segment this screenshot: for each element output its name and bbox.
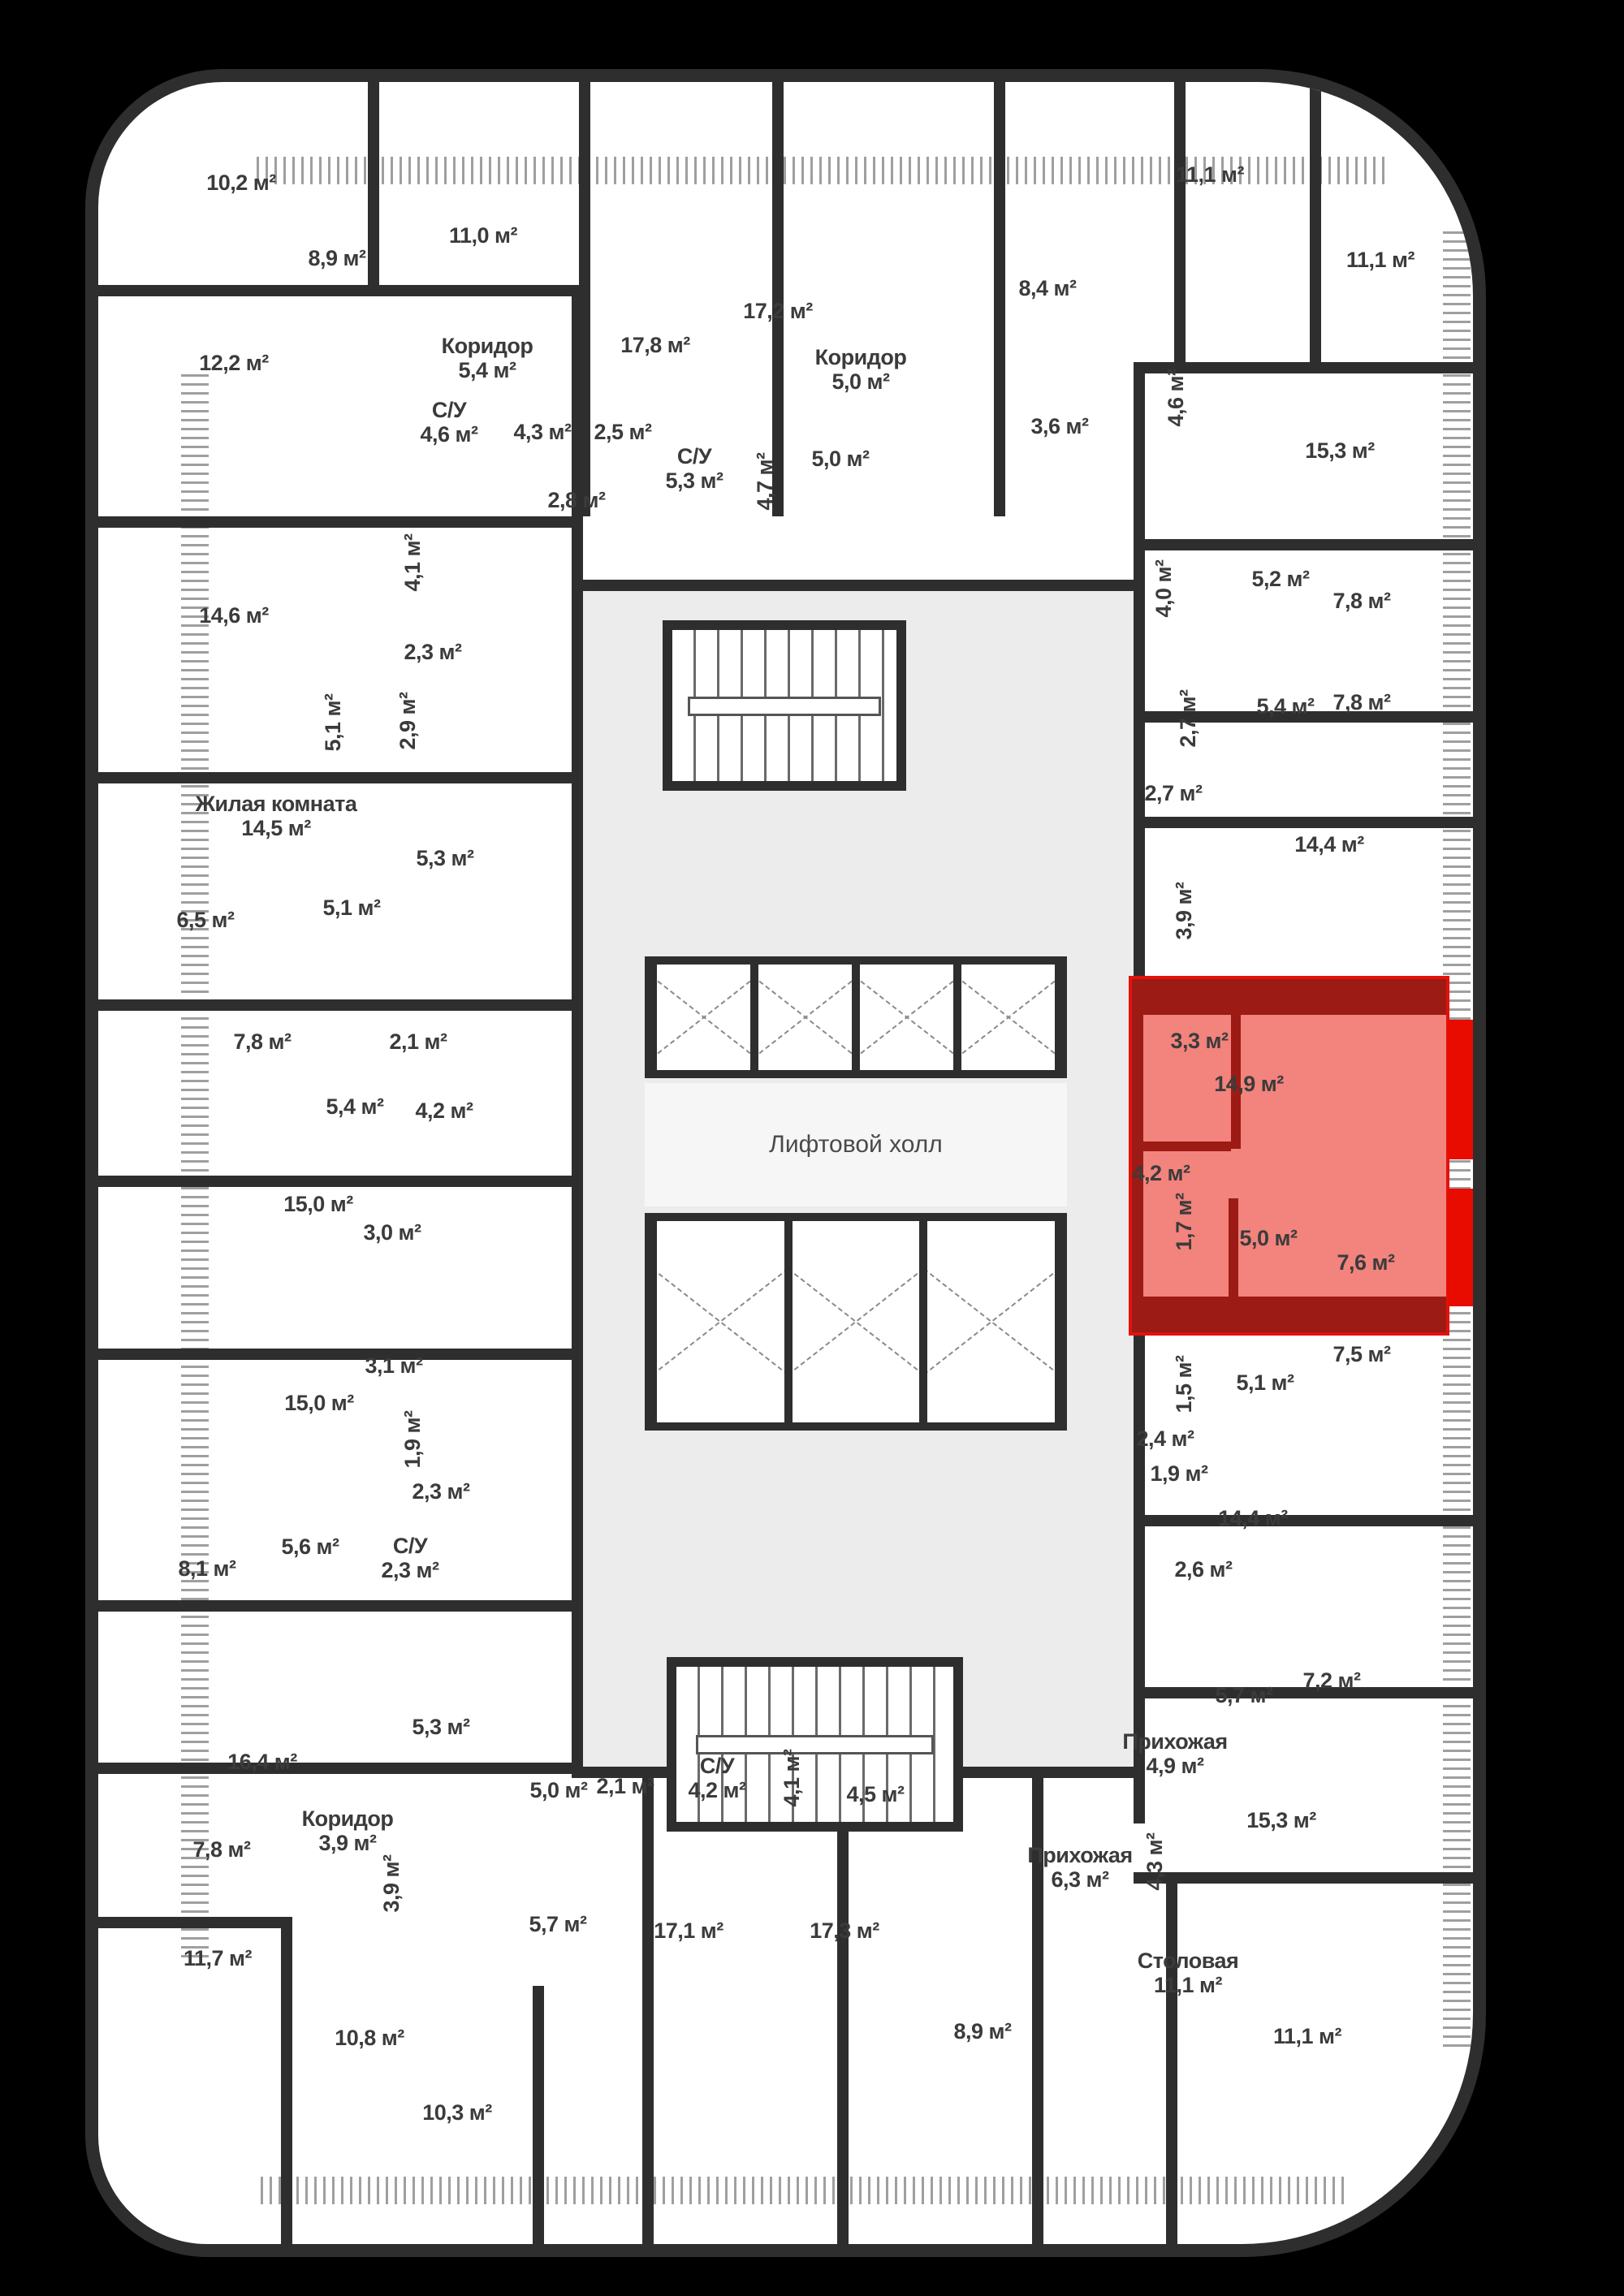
room-label: 4,1 м² (400, 534, 425, 592)
room-label: 3,0 м² (364, 1220, 421, 1245)
room-label: 14,6 м² (199, 603, 269, 628)
room-labels: 10,2 м²8,9 м²11,0 м²12,2 м²14,6 м²Жилая … (0, 0, 1624, 2296)
room-label: 3,6 м² (1031, 414, 1089, 438)
room-label: 11,1 м² (1273, 2024, 1341, 2048)
room-label: 2,7 м² (1145, 781, 1203, 805)
room-label: 14,4 м² (1218, 1506, 1288, 1530)
room-label: 2,4 м² (1137, 1426, 1194, 1451)
room-label: 5,4 м² (1257, 694, 1315, 719)
room-label: 12,2 м² (199, 351, 269, 375)
room-label: 7,8 м² (234, 1029, 292, 1054)
room-label: 5,7 м² (1216, 1683, 1273, 1707)
room-label: 11,0 м² (449, 223, 517, 248)
room-label: 15,3 м² (1246, 1808, 1316, 1832)
room-label: 15,0 м² (283, 1192, 353, 1216)
room-label: 4,3 м² (1142, 1833, 1167, 1891)
room-label: 5,6 м² (282, 1534, 339, 1559)
room-label: 5,7 м² (529, 1912, 587, 1936)
room-label: 17,3 м² (810, 1918, 879, 1943)
room-label: 2,3 м² (404, 640, 462, 664)
selected-apartment-room-label: 5,0 м² (1240, 1226, 1298, 1250)
room-label: 5,2 м² (1252, 567, 1310, 591)
room-label: 10,8 м² (335, 2026, 404, 2050)
selected-apartment-room-label: 1,7 м² (1172, 1193, 1196, 1251)
room-label: 5,1 м² (321, 694, 345, 752)
room-label: Коридор3,9 м² (302, 1806, 394, 1855)
room-label: С/У5,3 м² (666, 444, 723, 493)
room-label: 2,8 м² (548, 488, 606, 512)
room-label: 17,2 м² (743, 299, 813, 323)
room-label: 5,1 м² (1237, 1370, 1294, 1395)
room-label: 17,8 м² (620, 333, 690, 357)
room-label: 1,9 м² (1151, 1461, 1208, 1486)
room-label: 4,0 м² (1151, 560, 1176, 618)
room-label: Прихожая6,3 м² (1027, 1843, 1132, 1892)
room-label: 11,7 м² (184, 1946, 252, 1970)
room-label: 4,1 м² (780, 1750, 804, 1807)
room-label: 3,1 м² (365, 1353, 423, 1378)
room-label: Столовая11,1 м² (1138, 1949, 1239, 1997)
selected-apartment-room-label: 14,9 м² (1214, 1072, 1284, 1096)
room-label: Жилая комната14,5 м² (196, 792, 357, 840)
room-label: 5,0 м² (812, 447, 870, 471)
room-label: 5,3 м² (417, 846, 474, 870)
room-label: 4,7 м² (753, 453, 777, 511)
room-label: 7,8 м² (1333, 690, 1391, 714)
room-label: 15,0 м² (284, 1391, 354, 1415)
room-label: 7,8 м² (193, 1837, 251, 1862)
room-label: Прихожая4,9 м² (1122, 1729, 1227, 1778)
room-label: 4,6 м² (1164, 369, 1188, 427)
room-label: 4,2 м² (416, 1098, 473, 1123)
room-label: Коридор5,0 м² (815, 345, 907, 394)
room-label: С/У4,2 м² (689, 1754, 746, 1802)
room-label: 8,9 м² (954, 2019, 1012, 2044)
room-label: 16,4 м² (227, 1750, 297, 1774)
room-label: 14,4 м² (1294, 832, 1364, 857)
selected-apartment-room-label: 7,6 м² (1337, 1250, 1395, 1275)
room-label: 8,9 м² (309, 246, 366, 270)
room-label: 11,1 м² (1176, 162, 1244, 187)
room-label: 1,5 м² (1172, 1356, 1196, 1413)
room-label: 15,3 м² (1305, 438, 1375, 463)
room-label: 4,3 м² (514, 420, 572, 444)
room-label: 8,4 м² (1019, 276, 1077, 300)
room-label: 3,9 м² (1172, 883, 1196, 940)
room-label: 5,0 м² (530, 1778, 588, 1802)
selected-apartment-room-label: 4,2 м² (1133, 1161, 1190, 1185)
room-label: 2,1 м² (597, 1774, 654, 1798)
room-label: 4,5 м² (847, 1782, 905, 1806)
room-label: 7,5 м² (1333, 1342, 1391, 1366)
room-label: 8,1 м² (179, 1556, 236, 1581)
room-label: 11,1 м² (1346, 248, 1415, 272)
room-label: 2,1 м² (390, 1029, 447, 1054)
room-label: 1,9 м² (400, 1411, 425, 1469)
floor-plan-canvas: Лифтовой холл 10,2 м²8,9 м²11,0 м²12,2 м… (0, 0, 1624, 2296)
room-label: 5,4 м² (326, 1094, 384, 1119)
room-label: 7,2 м² (1303, 1668, 1361, 1693)
room-label: Коридор5,4 м² (442, 334, 533, 382)
room-label: 2,6 м² (1175, 1557, 1233, 1582)
selected-apartment-room-label: 3,3 м² (1171, 1029, 1229, 1053)
room-label: 17,1 м² (654, 1918, 723, 1943)
room-label: 2,7 м² (1176, 690, 1200, 748)
room-label: 5,3 м² (412, 1715, 470, 1739)
room-label: 10,2 м² (206, 170, 276, 195)
room-label: 7,8 м² (1333, 589, 1391, 613)
room-label: 3,9 м² (379, 1855, 404, 1913)
room-label: С/У2,3 м² (382, 1534, 439, 1582)
room-label: 2,3 м² (412, 1479, 470, 1504)
room-label: 5,1 м² (323, 896, 381, 920)
room-label: С/У4,6 м² (421, 398, 478, 447)
room-label: 10,3 м² (422, 2100, 492, 2125)
room-label: 6,5 м² (177, 908, 235, 932)
room-label: 2,9 м² (395, 693, 420, 750)
room-label: 2,5 м² (594, 420, 652, 444)
